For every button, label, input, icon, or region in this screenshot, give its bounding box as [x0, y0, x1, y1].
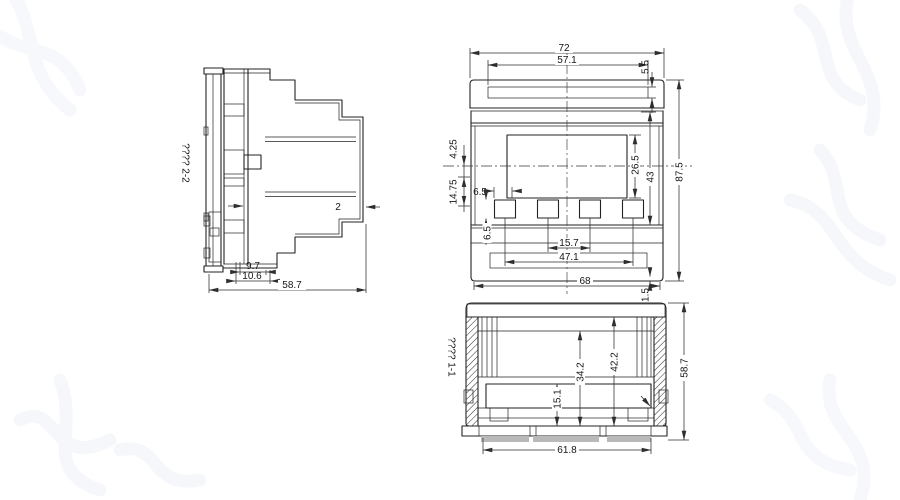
dim-wall-thickness: 2 — [335, 202, 341, 213]
side-section-view: ???? 2-2 2 9.7 10.6 58.7 — [180, 68, 381, 293]
terminal-pads — [481, 436, 651, 442]
dim-button-height: 6.5 — [483, 226, 494, 240]
dim-top-recess-width: 57.1 — [557, 55, 577, 66]
bottom-section-view: ???? 1-1 42.2 34.2 15.1 58.7 61.8 — [446, 303, 691, 456]
section-label-1-1: ???? 1-1 — [446, 337, 457, 377]
dim-overall-width: 72 — [558, 43, 570, 54]
button-2 — [538, 200, 559, 218]
dim-inner-width: 61.8 — [557, 445, 577, 456]
dim-display-height: 26.5 — [631, 155, 642, 175]
dim-base-lip: 1.5 — [641, 288, 652, 302]
dim-offset-a: 4.25 — [449, 139, 460, 159]
dim-cavity-depth-c: 15.1 — [553, 389, 564, 409]
dim-offset-b: 14.75 — [449, 179, 460, 204]
dim-cavity-depth-a: 42.2 — [610, 352, 621, 372]
dim-clip-depth: 10.6 — [242, 271, 262, 282]
dim-top-recess-height: 5.5 — [641, 60, 652, 74]
front-view: 72 57.1 5.5 87.5 43 26.5 — [443, 43, 692, 302]
dim-button-pitch: 15.7 — [559, 238, 579, 249]
watermark-glyphs — [0, 0, 890, 500]
button-3 — [580, 200, 601, 218]
dim-total-depth-bottom: 58.7 — [680, 358, 691, 378]
button-4 — [623, 200, 644, 218]
technical-drawing-page: ???? 2-2 2 9.7 10.6 58.7 — [0, 0, 900, 500]
dim-button-span: 47.1 — [559, 252, 579, 263]
dim-base-width: 68 — [579, 276, 591, 287]
dim-cavity-depth-b: 34.2 — [576, 362, 587, 382]
dim-face-height: 43 — [646, 171, 657, 183]
dim-total-depth-side: 58.7 — [282, 280, 302, 291]
section-label-2-2: ???? 2-2 — [180, 143, 191, 183]
button-1 — [495, 200, 516, 218]
dim-overall-height: 87.5 — [675, 162, 686, 182]
dim-button-width: 6.5 — [473, 187, 487, 198]
